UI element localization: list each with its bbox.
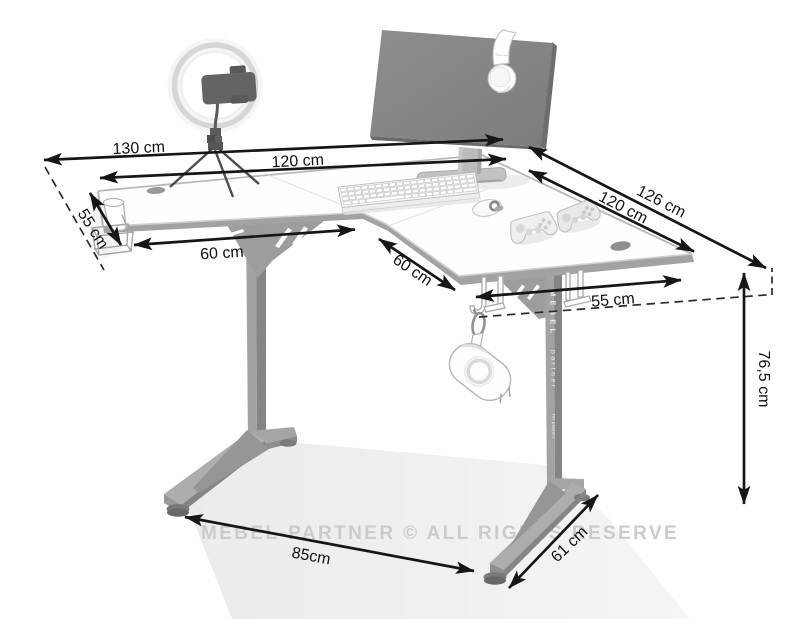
svg-text:MEBEL: MEBEL bbox=[549, 290, 558, 337]
svg-text:120 cm: 120 cm bbox=[271, 152, 324, 172]
svg-text:55 cm: 55 cm bbox=[591, 290, 636, 310]
svg-text:for players: for players bbox=[552, 414, 557, 439]
svg-text:130 cm: 130 cm bbox=[112, 139, 165, 158]
svg-text:60 cm: 60 cm bbox=[200, 244, 245, 264]
svg-text:partner: partner bbox=[550, 350, 557, 390]
svg-text:76,5 cm: 76,5 cm bbox=[755, 351, 772, 408]
